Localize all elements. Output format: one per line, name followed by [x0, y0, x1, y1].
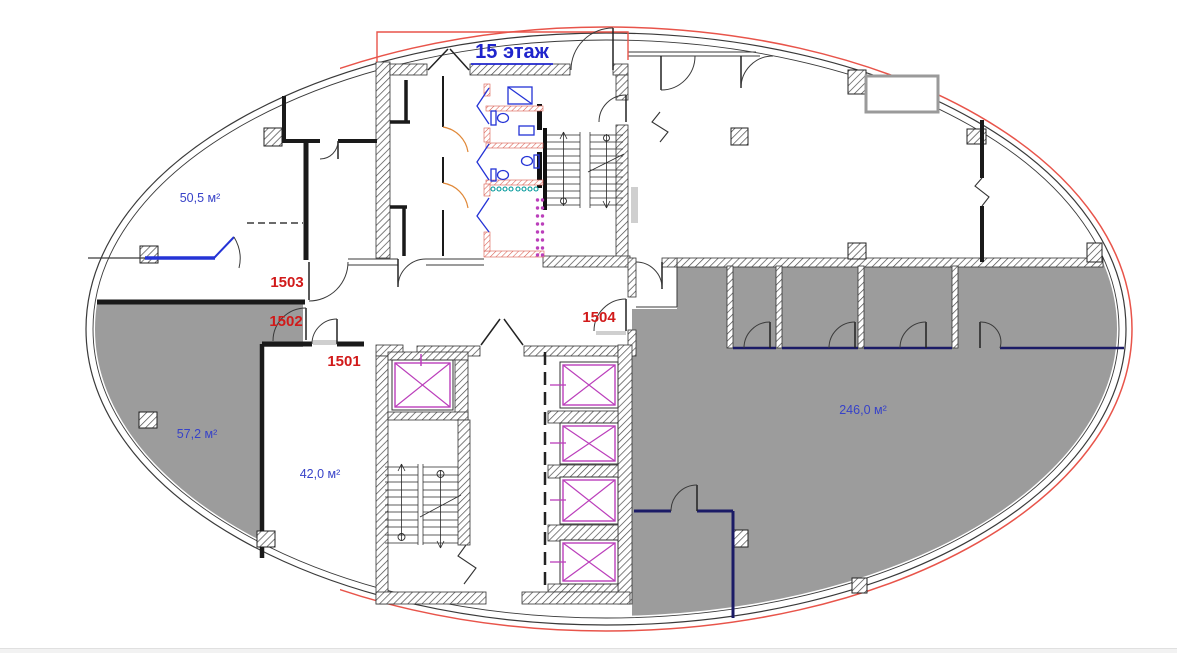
column [257, 531, 275, 547]
unit-label-1501: 1501 [327, 353, 360, 370]
column [848, 70, 866, 94]
stairs-top-core [547, 132, 624, 208]
area-label-57-2: 57,2 м² [177, 427, 218, 441]
stall-door [477, 198, 489, 232]
column [733, 530, 748, 547]
room-246-0-area [632, 248, 1140, 650]
floor-title: 15 этаж [475, 41, 550, 63]
area-label-50-5: 50,5 м² [180, 191, 221, 205]
facade-niche [866, 76, 938, 112]
column [852, 578, 867, 593]
hook-row [491, 187, 538, 191]
unit-label-1502: 1502 [269, 313, 302, 330]
blue-door-leaf [214, 237, 234, 258]
column [848, 243, 866, 259]
stall-door [477, 144, 489, 180]
wc-tank [491, 111, 496, 125]
column [731, 128, 748, 145]
riser-dots [536, 198, 544, 256]
elevator-shaft [392, 354, 453, 410]
floor-plan-page: 15 этаж 50,5 м² 57,2 м² 42,0 м² 246,0 м²… [0, 0, 1177, 653]
elevator-shaft [550, 477, 618, 524]
wc-bowl [522, 157, 533, 166]
area-label-246-0: 246,0 м² [839, 403, 887, 417]
column [264, 128, 282, 146]
wc-tank [491, 169, 496, 181]
column [139, 412, 157, 428]
window-bottom-edge [0, 648, 1177, 653]
elevator-shaft [550, 540, 618, 584]
toilet-partitions [484, 84, 544, 257]
area-label-42-0: 42,0 м² [300, 467, 341, 481]
column [1087, 243, 1102, 262]
wc-bowl [498, 114, 509, 123]
column [140, 246, 158, 263]
unit-label-1504: 1504 [582, 309, 616, 326]
sink [519, 126, 534, 135]
elevator-shaft [550, 423, 618, 464]
room-57-2-area [86, 304, 303, 645]
wc-bowl [498, 171, 509, 180]
unit-label-1503: 1503 [270, 274, 303, 291]
elevator-shaft [550, 362, 618, 408]
floor-plan-drawing: 15 этаж 50,5 м² 57,2 м² 42,0 м² 246,0 м²… [0, 0, 1177, 653]
closet-door-swings [443, 127, 468, 208]
